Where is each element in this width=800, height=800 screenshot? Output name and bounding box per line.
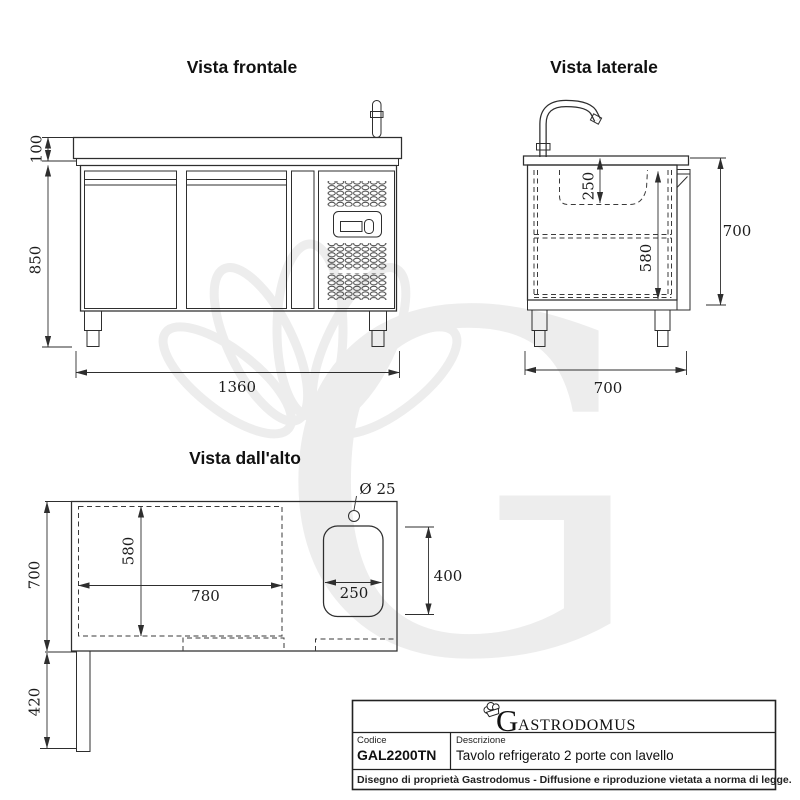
top-view-title: Vista dall'alto (189, 448, 301, 468)
faucet-front (371, 101, 384, 138)
top-dim-interior-depth: 580 (120, 537, 138, 566)
code-label: Codice (357, 735, 387, 746)
vent-grille-middle (327, 243, 387, 270)
front-view-title: Vista frontale (187, 57, 298, 77)
side-view-title: Vista laterale (550, 57, 658, 77)
side-dim-depth: 700 (594, 379, 623, 397)
top-dim-sink-width: 250 (340, 584, 369, 602)
faucet-side (537, 104, 602, 158)
door-edge-side (677, 170, 690, 311)
worktop-front (74, 138, 402, 159)
side-dim-interior-height: 580 (637, 244, 655, 273)
technical-drawing-sheet: G Vista frontale (0, 0, 800, 800)
front-dim-top-height: 100 (28, 135, 46, 164)
side-dim-sink-depth: 250 (580, 172, 598, 201)
top-dim-depth: 700 (26, 561, 44, 590)
vent-grille-top (327, 181, 387, 207)
top-dim-hole: Ø 25 (359, 480, 395, 498)
front-dim-width: 1360 (218, 378, 256, 396)
brand-rest: ASTRODOMUS (518, 717, 636, 734)
gastrodomus-watermark: G (147, 216, 647, 763)
code-value: GAL2200TN (357, 747, 436, 763)
brand-initial: G (496, 703, 518, 738)
interior-plan-outline (79, 507, 283, 637)
side-dim-height: 700 (723, 222, 752, 240)
door-left (85, 171, 177, 309)
description-value: Tavolo refrigerato 2 porte con lavello (456, 748, 674, 763)
top-dim-sink-length: 400 (434, 567, 463, 585)
vent-grille-bottom (327, 274, 387, 301)
drain-strip (77, 651, 91, 752)
front-dim-total-height: 850 (27, 246, 45, 275)
top-dim-interior-width: 780 (191, 587, 220, 605)
worktop-side (524, 156, 689, 165)
sink-hidden-outline (560, 170, 648, 205)
title-block: G ASTRODOMUS Codice GAL2200TN Descrizion… (353, 700, 792, 789)
top-dim-drain: 420 (26, 688, 44, 717)
legal-notice: Disegno di proprietà Gastrodomus - Diffu… (357, 774, 792, 786)
description-label: Descrizione (456, 735, 506, 746)
